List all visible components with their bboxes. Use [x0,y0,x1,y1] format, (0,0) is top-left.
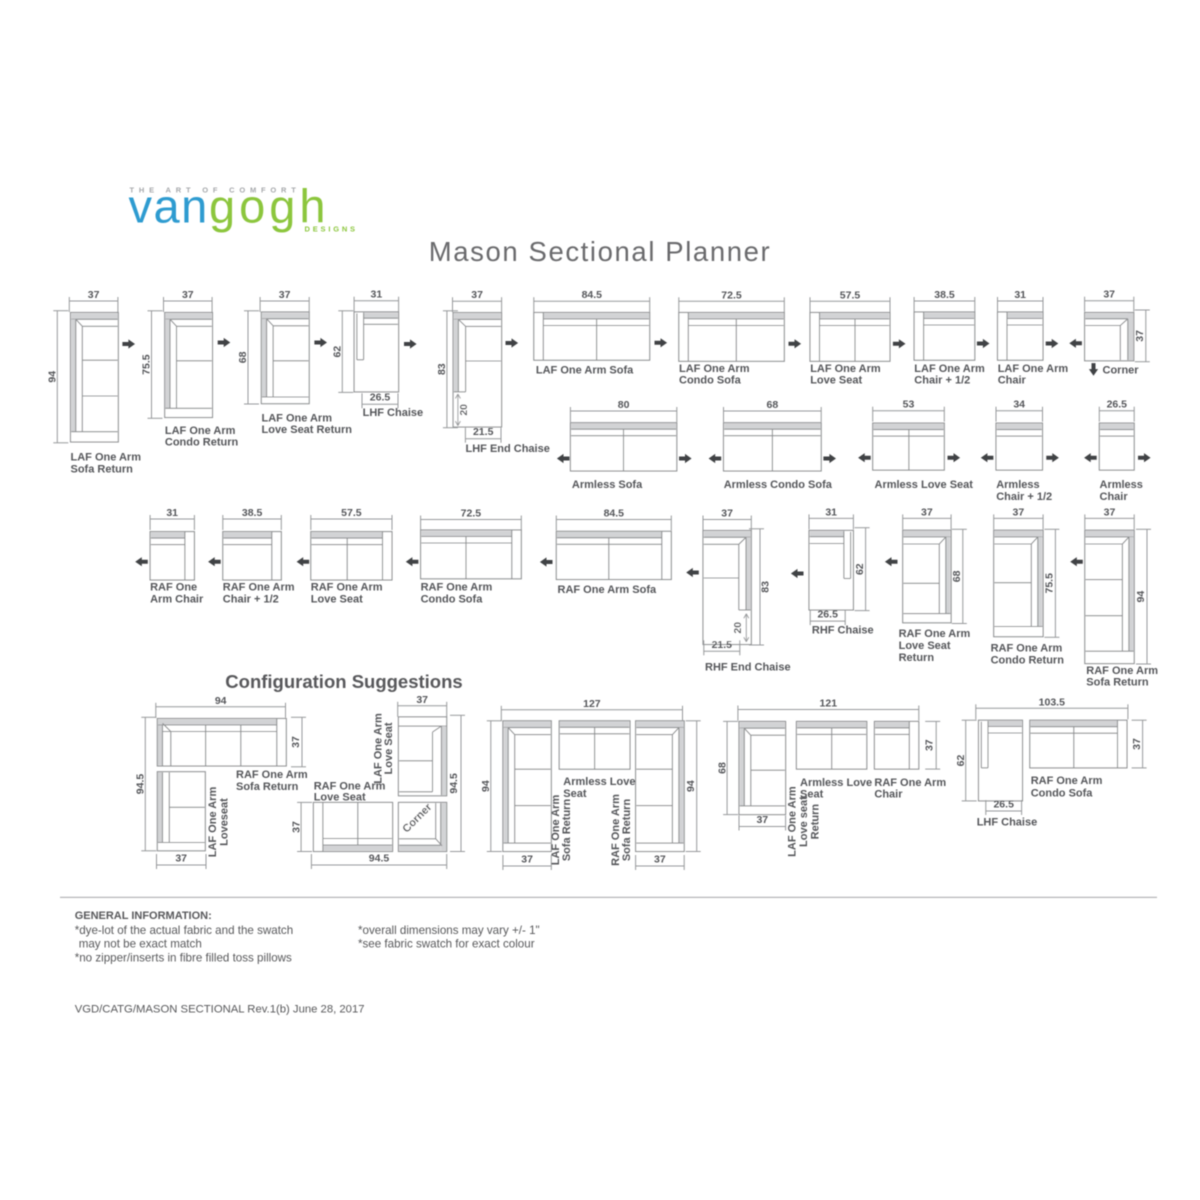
svg-text:RAF One Arm: RAF One Arm [236,769,308,781]
svg-text:94: 94 [215,695,227,707]
svg-text:RAF One Arm: RAF One Arm [421,582,493,594]
svg-text:37: 37 [654,854,666,866]
svg-text:Condo Sofa: Condo Sofa [1031,787,1094,799]
svg-text:21.5: 21.5 [473,426,494,438]
svg-text:LAF One Arm: LAF One Arm [262,412,333,424]
svg-text:Seat: Seat [563,788,587,800]
svg-text:68: 68 [767,399,779,411]
svg-text:LAF One Arm: LAF One Arm [71,452,142,464]
svg-text:RHF End Chaise: RHF End Chaise [705,662,791,674]
svg-text:21.5: 21.5 [712,639,733,651]
svg-text:37: 37 [290,821,302,833]
svg-text:*no zipper/inserts in fibre fi: *no zipper/inserts in fibre filled toss … [75,951,292,964]
svg-text:LAF One Arm: LAF One Arm [679,363,750,375]
svg-text:62: 62 [332,346,344,358]
svg-text:75.5: 75.5 [141,354,153,375]
svg-text:94.5: 94.5 [369,853,390,865]
svg-text:37: 37 [1104,506,1116,518]
svg-text:Condo Return: Condo Return [991,654,1065,666]
svg-text:37: 37 [416,694,428,706]
svg-text:RAF One Arm: RAF One Arm [899,628,971,640]
svg-text:37: 37 [521,854,533,866]
svg-text:37: 37 [756,814,768,826]
svg-text:37: 37 [88,289,100,301]
svg-text:LHF Chaise: LHF Chaise [363,407,424,419]
svg-text:57.5: 57.5 [840,289,861,301]
svg-text:LAF One Arm: LAF One Arm [810,363,881,375]
svg-text:20: 20 [458,404,470,416]
svg-text:37: 37 [279,289,291,301]
svg-text:Condo Sofa: Condo Sofa [421,593,484,605]
svg-text:37: 37 [1131,738,1143,750]
svg-text:RAF One Arm: RAF One Arm [991,643,1063,655]
svg-text:Arm Chair: Arm Chair [150,593,204,605]
svg-text:103.5: 103.5 [1039,696,1065,708]
svg-text:LAF One Arm: LAF One Arm [165,425,236,437]
svg-text:Sofa Return: Sofa Return [1086,677,1149,689]
svg-text:VGD/CATG/MASON SECTIONAL Rev.1: VGD/CATG/MASON SECTIONAL Rev.1(b) June 2… [75,1004,365,1016]
svg-text:Love Seat: Love Seat [899,640,951,652]
svg-text:Chair: Chair [874,789,903,801]
svg-text:Return: Return [810,804,822,840]
svg-text:Sofa Return: Sofa Return [561,799,573,862]
svg-text:37: 37 [1013,506,1025,518]
svg-text:LAF One Arm: LAF One Arm [998,363,1069,375]
svg-text:Love Seat Return: Love Seat Return [262,424,353,436]
svg-text:RAF One Arm: RAF One Arm [1031,775,1103,787]
svg-text:57.5: 57.5 [341,507,362,519]
svg-text:LHF Chaise: LHF Chaise [977,817,1038,829]
svg-text:van: van [129,180,209,233]
svg-text:72.5: 72.5 [461,508,482,520]
svg-text:68: 68 [716,762,728,774]
svg-text:Armless Love Seat: Armless Love Seat [875,479,974,491]
svg-text:Armless Sofa: Armless Sofa [572,479,643,491]
svg-text:Love Seat: Love Seat [311,593,363,605]
svg-text:31: 31 [371,289,383,301]
svg-text:RAF One Arm: RAF One Arm [311,582,383,594]
svg-text:Condo Sofa: Condo Sofa [679,375,742,387]
svg-text:31: 31 [1014,289,1026,301]
svg-text:72.5: 72.5 [721,289,742,301]
svg-text:94.5: 94.5 [448,773,460,794]
svg-text:Love Seat: Love Seat [314,792,366,804]
svg-text:31: 31 [166,507,178,519]
svg-text:94: 94 [685,780,697,792]
svg-text:RAF One Arm: RAF One Arm [1086,665,1158,677]
svg-text:LAF One Arm: LAF One Arm [914,363,985,375]
svg-text:94: 94 [480,780,492,792]
svg-text:62: 62 [955,755,967,767]
svg-text:37: 37 [290,736,302,748]
svg-text:121: 121 [820,698,838,710]
svg-text:20: 20 [732,622,744,634]
svg-text:68: 68 [951,570,963,582]
svg-text:Armless Love: Armless Love [800,777,872,789]
svg-text:83: 83 [436,363,448,375]
svg-text:*dye-lot of the actual fabric: *dye-lot of the actual fabric and the sw… [75,924,293,937]
svg-text:37: 37 [921,506,933,518]
svg-text:Chair: Chair [998,375,1027,387]
svg-text:Loveseat: Loveseat [219,798,231,846]
svg-text:37: 37 [182,289,194,301]
svg-text:RAF One: RAF One [150,582,197,594]
svg-text:26.5: 26.5 [817,609,838,621]
svg-text:37: 37 [721,508,733,520]
svg-text:37: 37 [1134,330,1146,342]
svg-text:LAF One Arm: LAF One Arm [207,787,219,858]
svg-text:Chair + 1/2: Chair + 1/2 [914,375,970,387]
svg-text:34: 34 [1013,399,1025,411]
svg-text:37: 37 [471,289,483,301]
svg-text:RAF One Arm Sofa: RAF One Arm Sofa [558,584,657,596]
svg-text:Return: Return [899,652,935,664]
svg-text:Configuration Suggestions: Configuration Suggestions [225,671,462,692]
svg-text:Love Seat: Love Seat [383,722,395,774]
svg-text:Love Seat: Love Seat [810,375,862,387]
svg-text:31: 31 [825,506,837,518]
svg-text:26.5: 26.5 [1107,399,1128,411]
svg-text:Chair + 1/2: Chair + 1/2 [223,593,279,605]
svg-text:62: 62 [854,563,866,575]
svg-text:38.5: 38.5 [242,507,263,519]
svg-text:Chair + 1/2: Chair + 1/2 [996,491,1052,503]
svg-text:Chair: Chair [1100,491,1129,503]
svg-text:84.5: 84.5 [582,289,603,301]
svg-text:127: 127 [583,698,601,710]
svg-text:94.5: 94.5 [135,774,147,795]
svg-text:26.5: 26.5 [370,392,391,404]
svg-text:84.5: 84.5 [604,508,625,520]
svg-text:83: 83 [760,581,772,593]
svg-text:Love seat: Love seat [798,796,810,847]
svg-text:75.5: 75.5 [1044,573,1056,594]
svg-text:LHF End Chaise: LHF End Chaise [466,443,550,455]
svg-text:Armless: Armless [1100,479,1143,491]
svg-text:may not be exact match: may not be exact match [79,938,202,951]
svg-text:LAF One Arm Sofa: LAF One Arm Sofa [536,365,634,377]
svg-text:Sofa Return: Sofa Return [621,799,633,862]
svg-text:37: 37 [923,739,935,751]
svg-text:Armless: Armless [996,479,1039,491]
svg-text:Armless Love: Armless Love [563,776,635,788]
svg-text:37: 37 [175,853,187,865]
svg-text:*overall dimensions may vary +: *overall dimensions may vary +/- 1" [358,924,540,937]
svg-text:DESIGNS: DESIGNS [305,225,358,234]
svg-text:94: 94 [1135,591,1147,603]
svg-text:LAF One Arm: LAF One Arm [787,786,799,857]
svg-text:RAF One Arm: RAF One Arm [223,582,295,594]
svg-text:94: 94 [47,371,59,383]
svg-text:Mason Sectional Planner: Mason Sectional Planner [429,236,772,267]
svg-text:53: 53 [903,399,915,411]
svg-text:RAF One Arm: RAF One Arm [874,777,946,789]
svg-text:Condo Return: Condo Return [165,437,239,449]
svg-text:*see fabric swatch for exact c: *see fabric swatch for exact colour [358,938,535,951]
svg-text:68: 68 [237,351,249,363]
svg-text:38.5: 38.5 [934,289,955,301]
svg-text:RHF Chaise: RHF Chaise [812,624,874,636]
svg-text:37: 37 [1103,289,1115,301]
svg-text:Sofa Return: Sofa Return [236,781,299,793]
svg-text:Armless Condo Sofa: Armless Condo Sofa [724,479,833,491]
svg-text:Corner: Corner [1103,365,1140,377]
svg-text:Sofa Return: Sofa Return [71,463,134,475]
svg-text:80: 80 [618,399,630,411]
svg-text:GENERAL INFORMATION:: GENERAL INFORMATION: [75,910,212,922]
svg-text:26.5: 26.5 [993,799,1014,811]
